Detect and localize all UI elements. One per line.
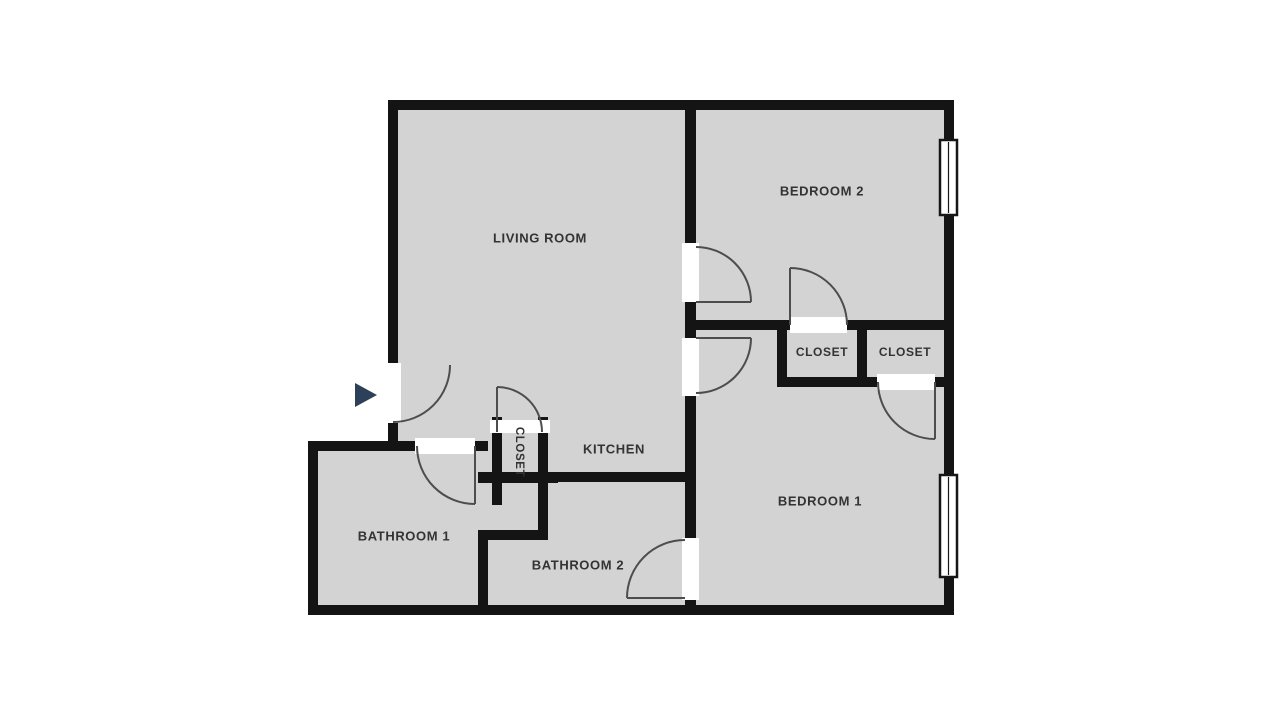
door-opening-entry: [385, 363, 401, 423]
room-label-bathroom-2: BATHROOM 2: [532, 558, 624, 573]
wall-segment: [478, 530, 488, 615]
window-bedroom-1: [940, 475, 957, 577]
door-opening-bathroom-2: [682, 538, 699, 600]
wall-segment: [308, 605, 954, 615]
door-opening-bathroom-1: [415, 438, 475, 454]
wall-segment: [308, 441, 318, 615]
wall-segment: [548, 472, 696, 482]
door-opening-bedroom-2: [682, 243, 699, 302]
room-label-bathroom-1: BATHROOM 1: [358, 529, 450, 544]
floor-plan-page: LIVING ROOM BEDROOM 2 CLOSET CLOSET CLOS…: [0, 0, 1280, 720]
room-label-bedroom-2: BEDROOM 2: [780, 184, 864, 199]
wall-segment: [478, 530, 548, 540]
wall-segment: [388, 100, 398, 363]
door-opening-closet-bedroom-1: [877, 374, 935, 390]
window-bedroom-2: [940, 140, 957, 215]
entry-marker-icon: [355, 383, 377, 407]
room-label-closet-hall: CLOSET: [513, 427, 525, 477]
wall-segment: [777, 320, 787, 387]
wall-segment: [388, 100, 954, 110]
wall-segment: [857, 320, 867, 387]
room-label-closet-bedroom-2: CLOSET: [796, 345, 848, 359]
floor-plan: LIVING ROOM BEDROOM 2 CLOSET CLOSET CLOS…: [0, 0, 1280, 720]
wall-segment: [538, 472, 548, 540]
door-opening-hallway: [682, 338, 699, 396]
room-label-closet-bedroom-1: CLOSET: [879, 345, 931, 359]
room-label-kitchen: KITCHEN: [583, 442, 645, 457]
room-label-living-room: LIVING ROOM: [493, 231, 587, 246]
door-opening-closet-bedroom-2: [790, 317, 847, 333]
room-label-bedroom-1: BEDROOM 1: [778, 494, 862, 509]
